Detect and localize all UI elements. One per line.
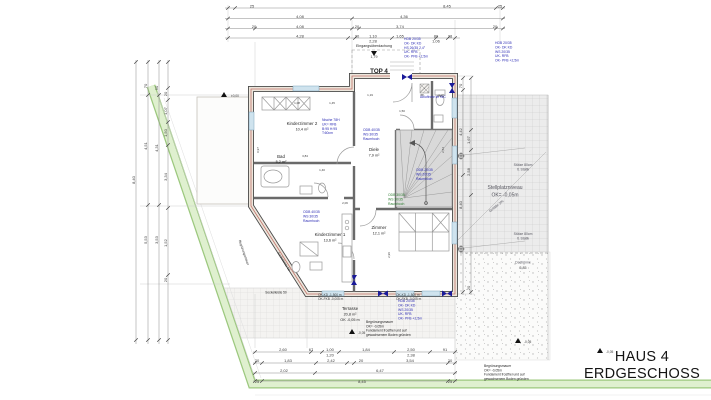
plan-label: 2,42 — [327, 358, 336, 363]
plan-label: Stütze 80cm — [514, 163, 533, 167]
plan-note-block: BegrünungsmauerOK= -0,05mFundament frost… — [484, 364, 529, 381]
plan-label: 20 — [355, 34, 360, 39]
plan-label: 13,6 m² — [324, 239, 338, 243]
plan-label: 1,08 — [294, 101, 300, 105]
plan-label: 2,58 — [466, 167, 471, 176]
plan-label: 25 — [498, 4, 503, 9]
plan-label: 3,53 — [154, 235, 159, 244]
plan-label: 7,9 m² — [369, 154, 380, 158]
plan-label: Eingangsüberdachung — [356, 44, 392, 48]
plan-label: 4,42 — [458, 127, 463, 136]
plan-label: 4,36 — [400, 14, 409, 19]
plan-note-block: ODB 30/35WS 30/35Raumhoch — [388, 193, 405, 206]
plan-label: 5,2 m² — [276, 160, 287, 164]
plan-label: 10,4 m² — [296, 128, 310, 132]
plan-note-block: ODB 20/35WS 20/35Raumhoch — [416, 168, 433, 181]
plan-label: 25 — [448, 379, 453, 384]
plan-label: Sockelleiste 50 — [265, 291, 287, 295]
plan-label: 1,19 — [367, 93, 373, 97]
plan-label: 67 — [309, 347, 314, 352]
plan-label: OK= -0,05m — [491, 193, 518, 199]
plan-label: 3,84 — [302, 154, 308, 158]
plan-label: 1,84 — [362, 347, 371, 352]
plan-label: 4,28 — [296, 34, 305, 39]
plan-label: TOP 4 — [370, 68, 388, 75]
plan-label: 2,60 — [279, 347, 288, 352]
plan-note-block: OK-KD -1,500 mOK-FKB -0,005 m — [396, 293, 422, 301]
plan-label: 4,31 — [154, 143, 159, 152]
plan-label: 20 — [466, 285, 471, 290]
plan-label: 20 — [493, 24, 498, 29]
plan-label: 4,08 — [296, 24, 305, 29]
plan-label: 1,67 — [466, 135, 471, 144]
plan-label: 20 — [448, 358, 453, 363]
plan-label: 20 — [252, 24, 257, 29]
plan-label: 6,47 — [376, 368, 385, 373]
plan-label: 2,02 — [280, 368, 289, 373]
plan-label: Diele — [369, 147, 380, 152]
plan-label: 8,45 — [358, 379, 367, 384]
plan-label: 25 — [255, 379, 260, 384]
plan-label: -0,05 — [524, 340, 531, 344]
plan-label: 5,85 — [520, 266, 527, 270]
floor-plan-page: 258,45254,084,36204,08203,74204,28201,10… — [0, 0, 711, 400]
plan-label: 70 — [143, 83, 148, 88]
plan-label: 1,06 — [432, 39, 441, 44]
plan-note-block: HDB 20/35OK- DK KDWS 20/35UK- RFBOK- PFB… — [495, 41, 519, 63]
plan-label: 70 — [458, 83, 463, 88]
drawing-title: HAUS 4 ERDGESCHOSS — [583, 349, 701, 383]
plan-label: Stütze 80cm — [514, 232, 533, 236]
plan-label: Kinderzimmer 2 — [287, 121, 318, 126]
plan-label: 1,50 — [163, 128, 168, 137]
plan-label: Kinderzimmer 1 — [315, 232, 346, 237]
plan-label: 2,54 — [441, 147, 445, 153]
plan-label: 28 — [448, 34, 453, 39]
drawing-title-line2: ERDGESCHOSS — [583, 366, 701, 383]
plan-label: Begrünungsmauer — [238, 240, 251, 267]
plan-label: 20 — [255, 358, 260, 363]
plan-label: 8,40 — [458, 200, 463, 209]
plan-note-block: ODB 40/35WS 30/35Raumhoch — [303, 210, 320, 223]
plan-label: 3,54 — [406, 358, 415, 363]
plan-label: Zimmer — [372, 225, 387, 230]
plan-label: lt. Statik — [517, 168, 529, 172]
plan-label: 1,20 — [326, 353, 335, 358]
plan-label: 12,1 m² — [373, 232, 387, 236]
plan-label: 20 — [163, 91, 168, 96]
gravel-area — [455, 252, 550, 360]
plan-label: 0,97 — [256, 147, 260, 153]
plan-label: 2,28 — [369, 39, 378, 44]
plan-note-block: ODB 40/35WS 30/35Raumhoch — [363, 128, 380, 141]
plan-label: -0,05 — [358, 331, 365, 335]
plan-label: 1,40 — [319, 168, 325, 172]
plan-note-block: HDB 20/35OK- DK KDHS 26/35 2,4°UK- RFBOK… — [404, 37, 428, 59]
plan-label: 20,8 m² — [344, 313, 358, 317]
plan-label: Stellplatzniveau — [487, 185, 522, 191]
plan-label: 1,45 — [329, 101, 335, 105]
plan-label: 3,34 — [163, 172, 168, 181]
plan-label: Bad — [277, 154, 285, 159]
plan-label: 50 — [154, 85, 159, 90]
plan-label: 25 — [250, 4, 255, 9]
plan-label: 20 — [359, 358, 364, 363]
plan-label: 8,40 — [131, 175, 136, 184]
plan-label: 2,50 — [407, 347, 416, 352]
plan-label: 2,38 — [407, 353, 416, 358]
plan-label: 20 — [355, 24, 360, 29]
plan-label: 1,50 — [399, 109, 405, 113]
floor-plan-drawing: 258,45254,084,36204,08203,74204,28201,10… — [0, 0, 711, 400]
plan-label: OK -0,05 m — [340, 318, 359, 322]
plan-label: 5,53 — [143, 235, 148, 244]
plan-label: Terrasse — [342, 306, 359, 311]
plan-label: 3,74 — [396, 24, 405, 29]
plan-label: 1,52 — [163, 238, 168, 247]
plan-label: 4,51 — [143, 141, 148, 150]
plan-note-block: Abluftrohr im WC — [420, 95, 446, 99]
drawing-title-line1: HAUS 4 — [583, 349, 701, 366]
plan-label: ±0,00 — [231, 94, 239, 98]
plan-label: 2,06 — [342, 201, 348, 205]
plan-label: 8,45 — [443, 4, 452, 9]
plan-label: 91 — [443, 347, 448, 352]
deck-outline — [197, 97, 255, 204]
plan-label: 2,96 — [387, 252, 391, 258]
plan-label: 1,79 — [371, 55, 378, 59]
plan-label: Dachrinne — [515, 261, 531, 265]
plan-label: 1,83 — [284, 358, 293, 363]
plan-label: 20 — [163, 277, 168, 282]
plan-note-block: OK-KD -1,500 mOK-FKB -0,005 m — [318, 293, 344, 301]
plan-label: 1,00 — [326, 347, 335, 352]
plan-label: 1,07 — [163, 106, 168, 115]
plan-label: lt. Statik — [517, 237, 529, 241]
plan-label: 4,08 — [296, 14, 305, 19]
